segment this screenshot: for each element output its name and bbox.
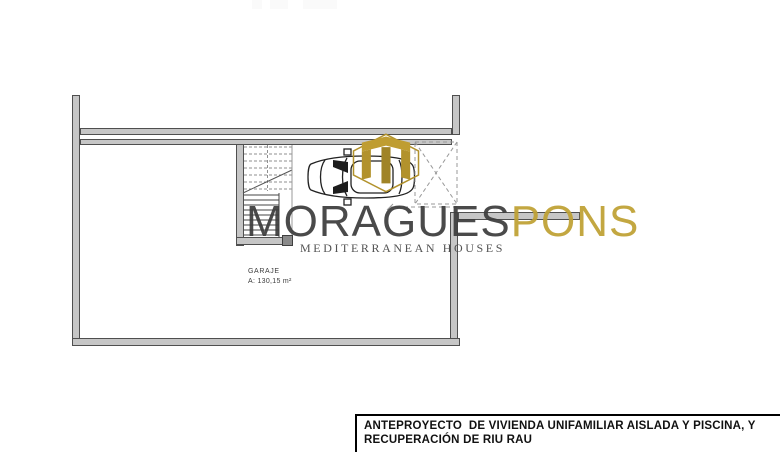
project-title-line2: RECUPERACIÓN DE RIU RAU — [364, 433, 774, 447]
wall-left — [72, 95, 80, 345]
floor-plan-canvas: GARAJE A: 130,15 m² MORAGUESPONS MEDITER… — [0, 0, 780, 452]
room-area-label: A: 130,15 m² — [248, 278, 292, 285]
stair-treads-solid — [244, 193, 279, 237]
car-windshield-shade — [333, 181, 348, 194]
car-top-view — [305, 148, 417, 206]
car-hood-line — [321, 160, 326, 194]
wall-stub-right — [458, 212, 580, 220]
wall-bottom — [72, 338, 460, 346]
garage-opening-marks — [413, 138, 461, 212]
floor-plan: GARAJE A: 130,15 m² — [0, 0, 780, 452]
staircase — [236, 139, 294, 247]
car-rear-window-line — [399, 160, 402, 194]
stair-treads-dashed — [244, 145, 292, 191]
car-mirror-top — [344, 149, 351, 155]
project-title-line1: ANTEPROYECTO DE VIVIENDA UNIFAMILIAR AIS… — [364, 419, 774, 433]
stair-door-jamb — [283, 236, 293, 246]
stair-wall-left — [237, 145, 244, 246]
car-roof — [351, 161, 393, 193]
title-block: ANTEPROYECTO DE VIVIENDA UNIFAMILIAR AIS… — [355, 414, 780, 452]
wall-top-outer — [80, 128, 452, 135]
wall-right-lower — [450, 212, 458, 345]
car-mirror-bottom — [344, 199, 351, 205]
car-windshield-shade — [333, 160, 348, 173]
room-label: GARAJE — [248, 266, 280, 277]
wall-right-upper — [452, 95, 460, 135]
dashed-guide-line — [386, 202, 462, 212]
